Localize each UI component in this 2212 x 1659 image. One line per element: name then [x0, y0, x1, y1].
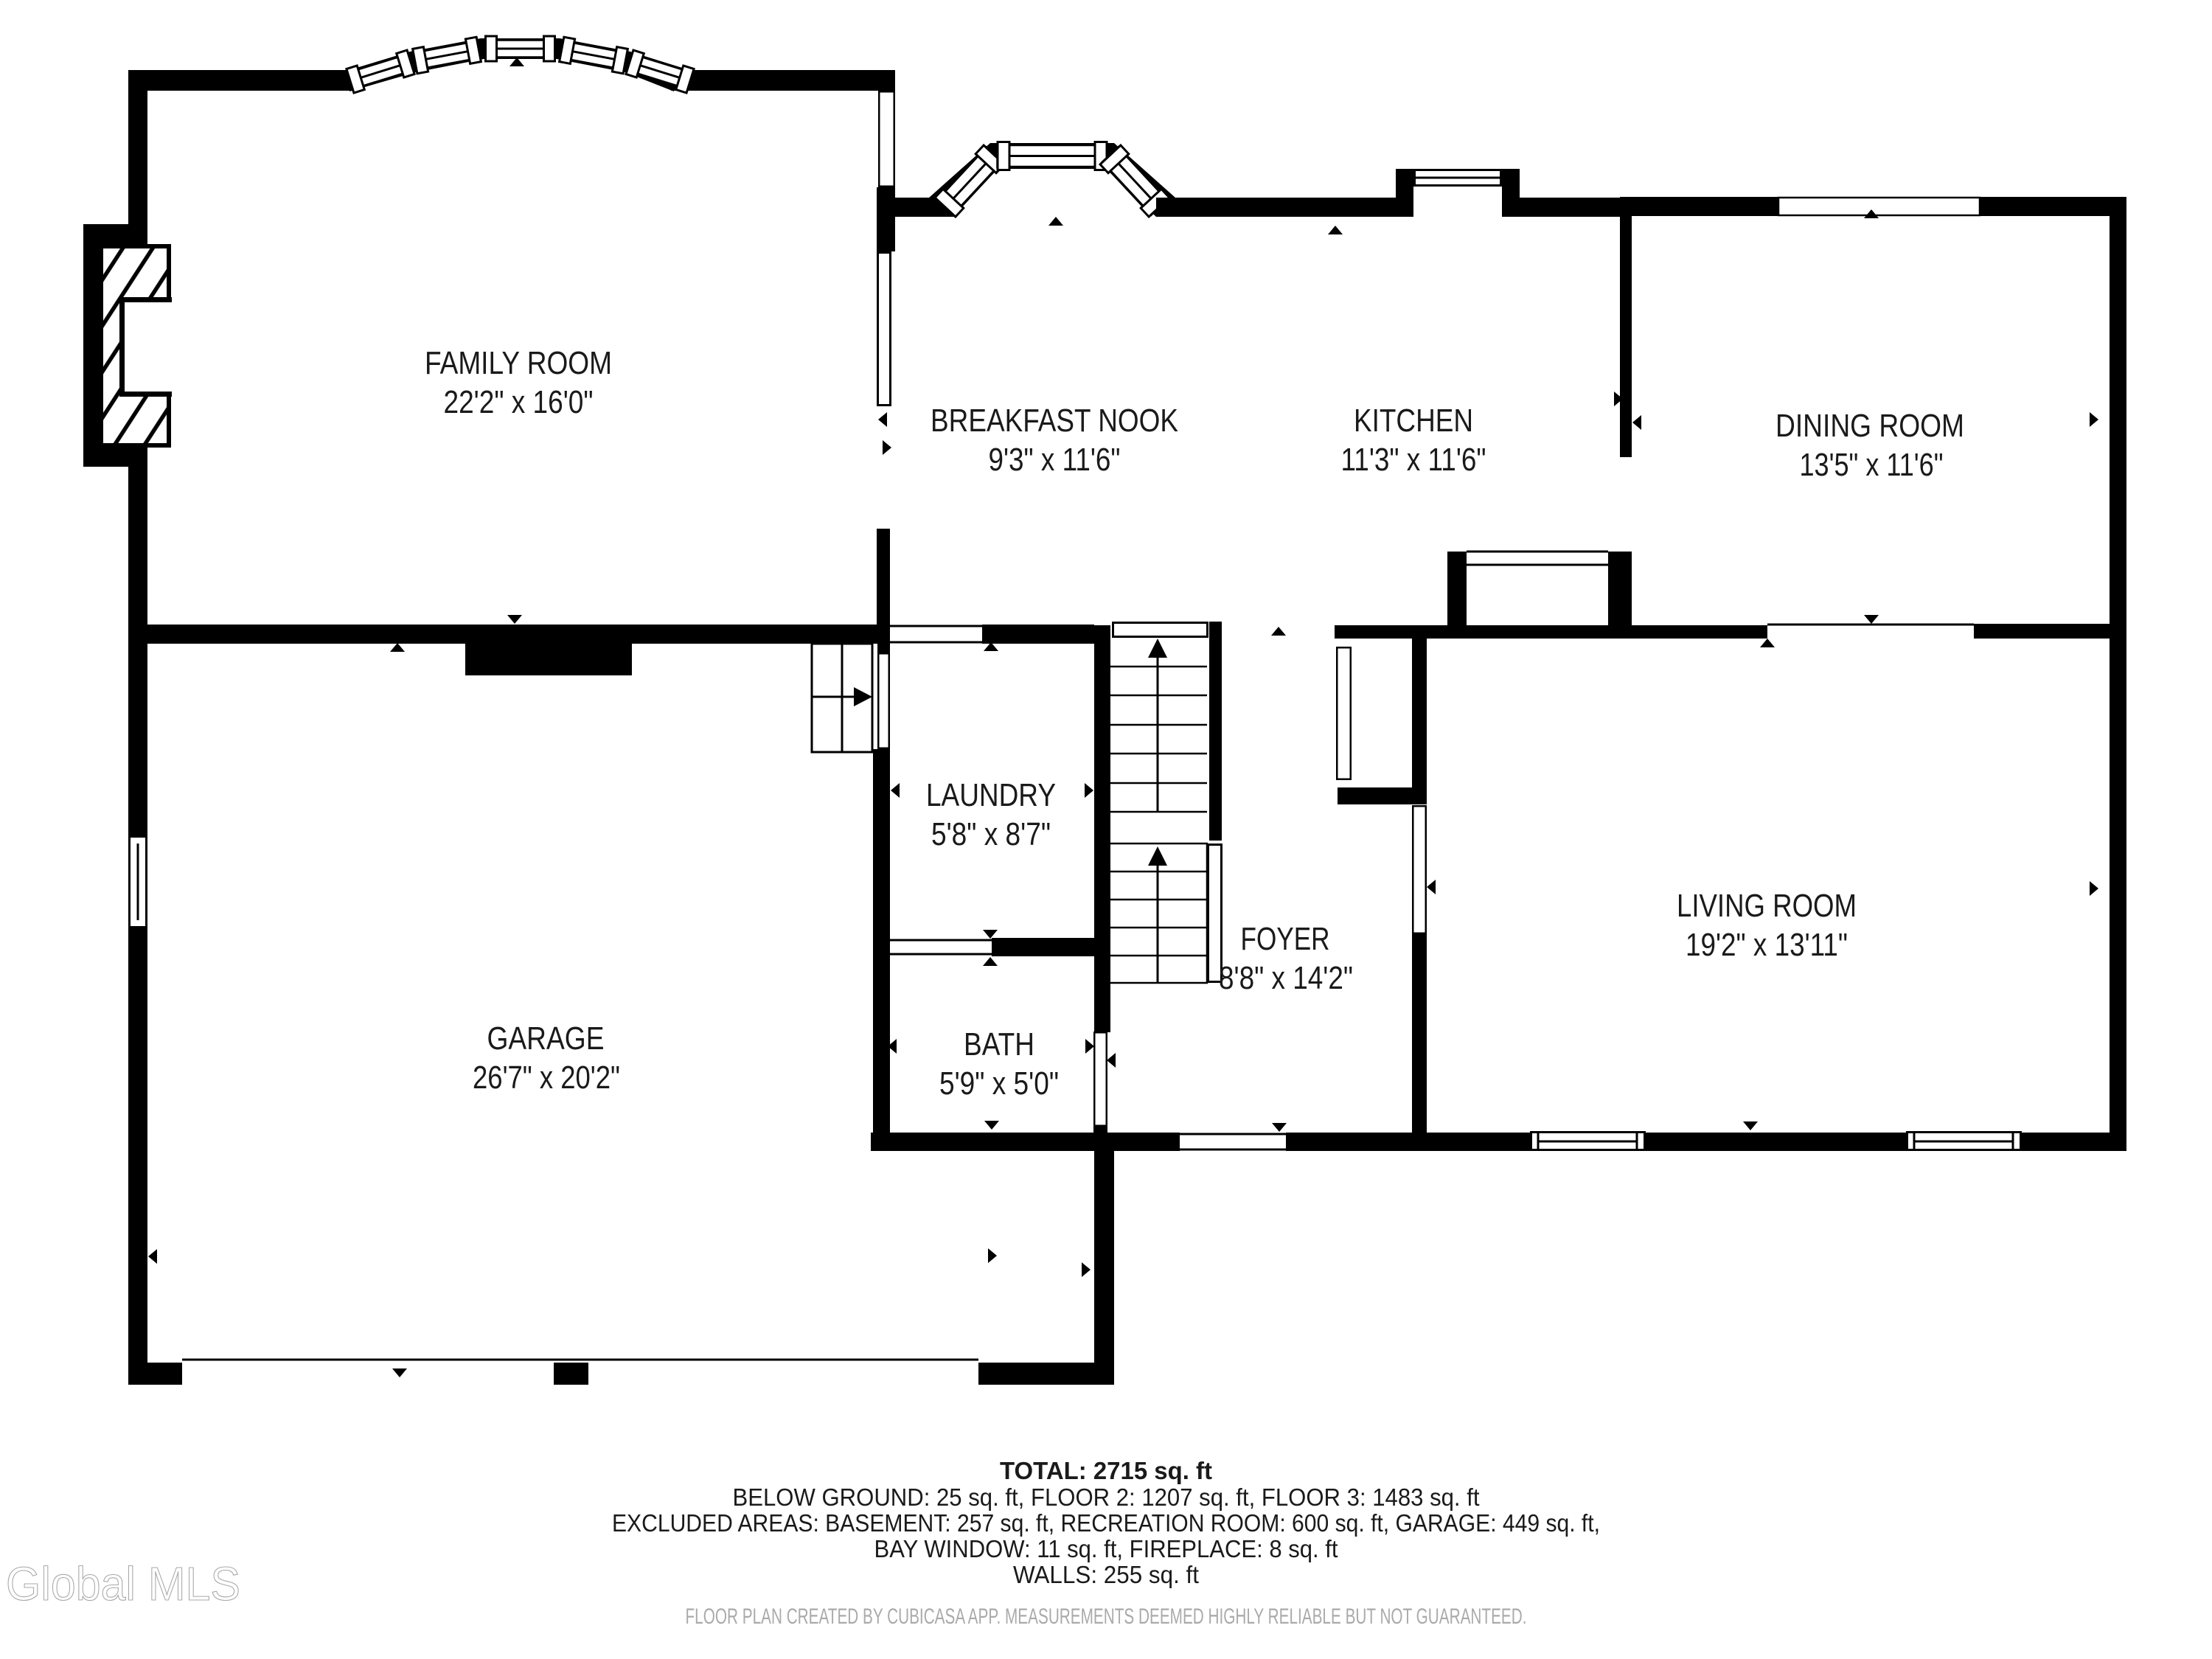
svg-text:FAMILY ROOM: FAMILY ROOM [425, 345, 612, 381]
svg-text:11'3" x 11'6": 11'3" x 11'6" [1341, 442, 1486, 478]
svg-text:DINING ROOM: DINING ROOM [1775, 408, 1964, 444]
svg-text:WALLS: 255 sq. ft: WALLS: 255 sq. ft [1013, 1561, 1199, 1588]
svg-text:19'2" x 13'11": 19'2" x 13'11" [1686, 927, 1848, 963]
svg-text:BELOW GROUND: 25 sq. ft, FLOOR: BELOW GROUND: 25 sq. ft, FLOOR 2: 1207 s… [733, 1484, 1480, 1511]
svg-text:Global MLS: Global MLS [6, 1557, 240, 1610]
svg-text:9'3" x 11'6": 9'3" x 11'6" [989, 442, 1121, 478]
svg-text:BAY WINDOW: 11 sq. ft, FIREPLA: BAY WINDOW: 11 sq. ft, FIREPLACE: 8 sq. … [874, 1535, 1338, 1562]
svg-text:13'5" x 11'6": 13'5" x 11'6" [1800, 447, 1944, 483]
svg-text:GARAGE: GARAGE [487, 1020, 605, 1057]
svg-text:FLOOR PLAN CREATED BY CUBICASA: FLOOR PLAN CREATED BY CUBICASA APP. MEAS… [686, 1604, 1527, 1629]
svg-text:26'7" x 20'2": 26'7" x 20'2" [473, 1060, 620, 1096]
svg-text:22'2" x 16'0": 22'2" x 16'0" [444, 384, 594, 420]
svg-text:LIVING ROOM: LIVING ROOM [1677, 888, 1857, 924]
svg-text:KITCHEN: KITCHEN [1354, 403, 1473, 439]
svg-text:BREAKFAST NOOK: BREAKFAST NOOK [931, 403, 1178, 439]
svg-text:5'9" x 5'0": 5'9" x 5'0" [939, 1065, 1059, 1102]
svg-text:LAUNDRY: LAUNDRY [926, 777, 1056, 813]
svg-text:FOYER: FOYER [1241, 921, 1330, 957]
svg-text:5'8" x 8'7": 5'8" x 8'7" [931, 816, 1051, 852]
svg-text:TOTAL: 2715 sq. ft: TOTAL: 2715 sq. ft [1000, 1457, 1212, 1484]
svg-text:BATH: BATH [964, 1026, 1034, 1062]
svg-text:8'8" x 14'2": 8'8" x 14'2" [1219, 960, 1353, 996]
svg-text:EXCLUDED AREAS: BASEMENT: 257: EXCLUDED AREAS: BASEMENT: 257 sq. ft, RE… [612, 1509, 1600, 1537]
